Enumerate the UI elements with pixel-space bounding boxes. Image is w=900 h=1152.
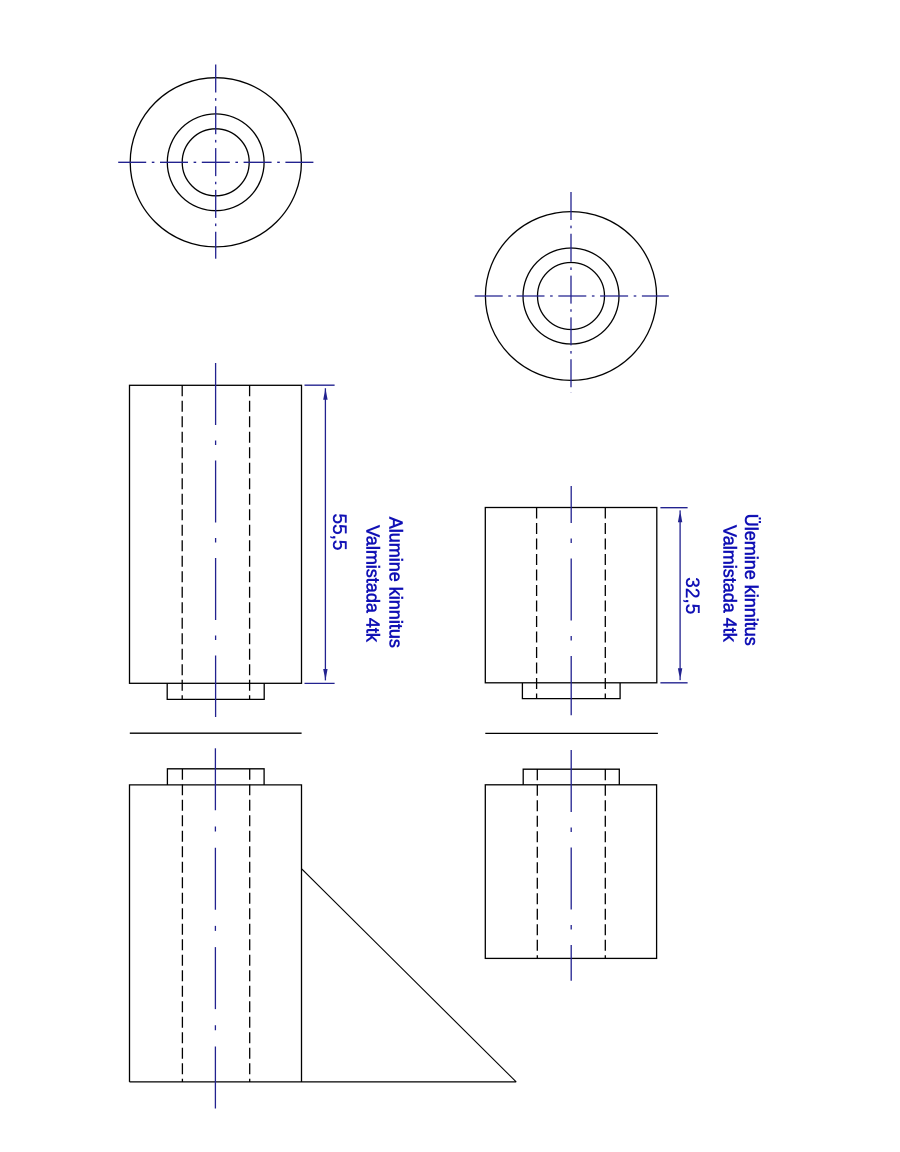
- svg-text:Valmistada 4tk: Valmistada 4tk: [363, 525, 383, 643]
- svg-text:Ülemine kinnitus: Ülemine kinnitus: [741, 514, 761, 646]
- svg-text:32,5: 32,5: [681, 577, 702, 614]
- svg-text:Alumine kinnitus: Alumine kinnitus: [386, 517, 406, 648]
- svg-text:Valmistada 4tk: Valmistada 4tk: [720, 525, 740, 643]
- svg-text:55,5: 55,5: [328, 514, 349, 551]
